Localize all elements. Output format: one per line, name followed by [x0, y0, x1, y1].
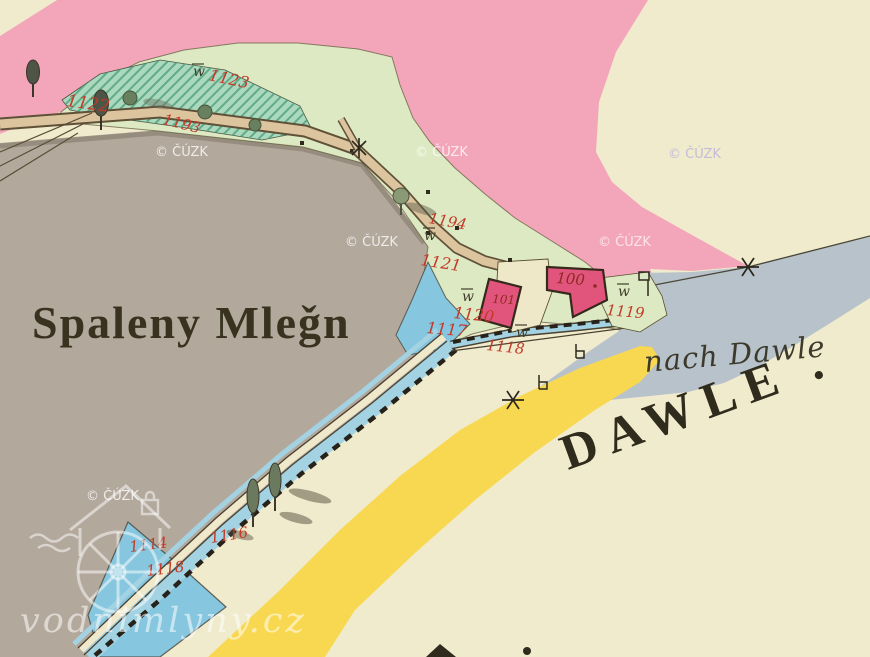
cuzk-watermark: © ČÚZK	[668, 146, 721, 162]
house-number-100-dot	[593, 284, 597, 288]
parcel-number-1119: 1119	[606, 301, 646, 322]
parcel-number-1117: 1117	[426, 318, 469, 341]
meadow-w: w	[424, 228, 436, 244]
cuzk-watermark: © ČÚZK	[598, 234, 651, 250]
house-number-100: 100	[556, 269, 586, 289]
meadow-w: w	[193, 64, 205, 80]
logo-spokes	[78, 532, 158, 612]
cuzk-watermark: © ČÚZK	[155, 144, 208, 160]
meadow-w: w	[618, 284, 630, 300]
site-watermark: vodnimlyny.cz	[20, 601, 307, 641]
cuzk-watermark: © ČÚZK	[345, 234, 398, 250]
map-canvas: w w w w w 1122 1123 1193 1194 1121 1120 …	[0, 0, 870, 657]
cuzk-watermark: © ČÚZK	[415, 144, 468, 160]
place-name-label: Spaleny Mleǧn	[32, 297, 351, 348]
house-number-101: 101.	[492, 292, 519, 307]
meadow-w: w	[462, 289, 474, 305]
historic-cadastral-map: w w w w w 1122 1123 1193 1194 1121 1120 …	[0, 0, 870, 657]
